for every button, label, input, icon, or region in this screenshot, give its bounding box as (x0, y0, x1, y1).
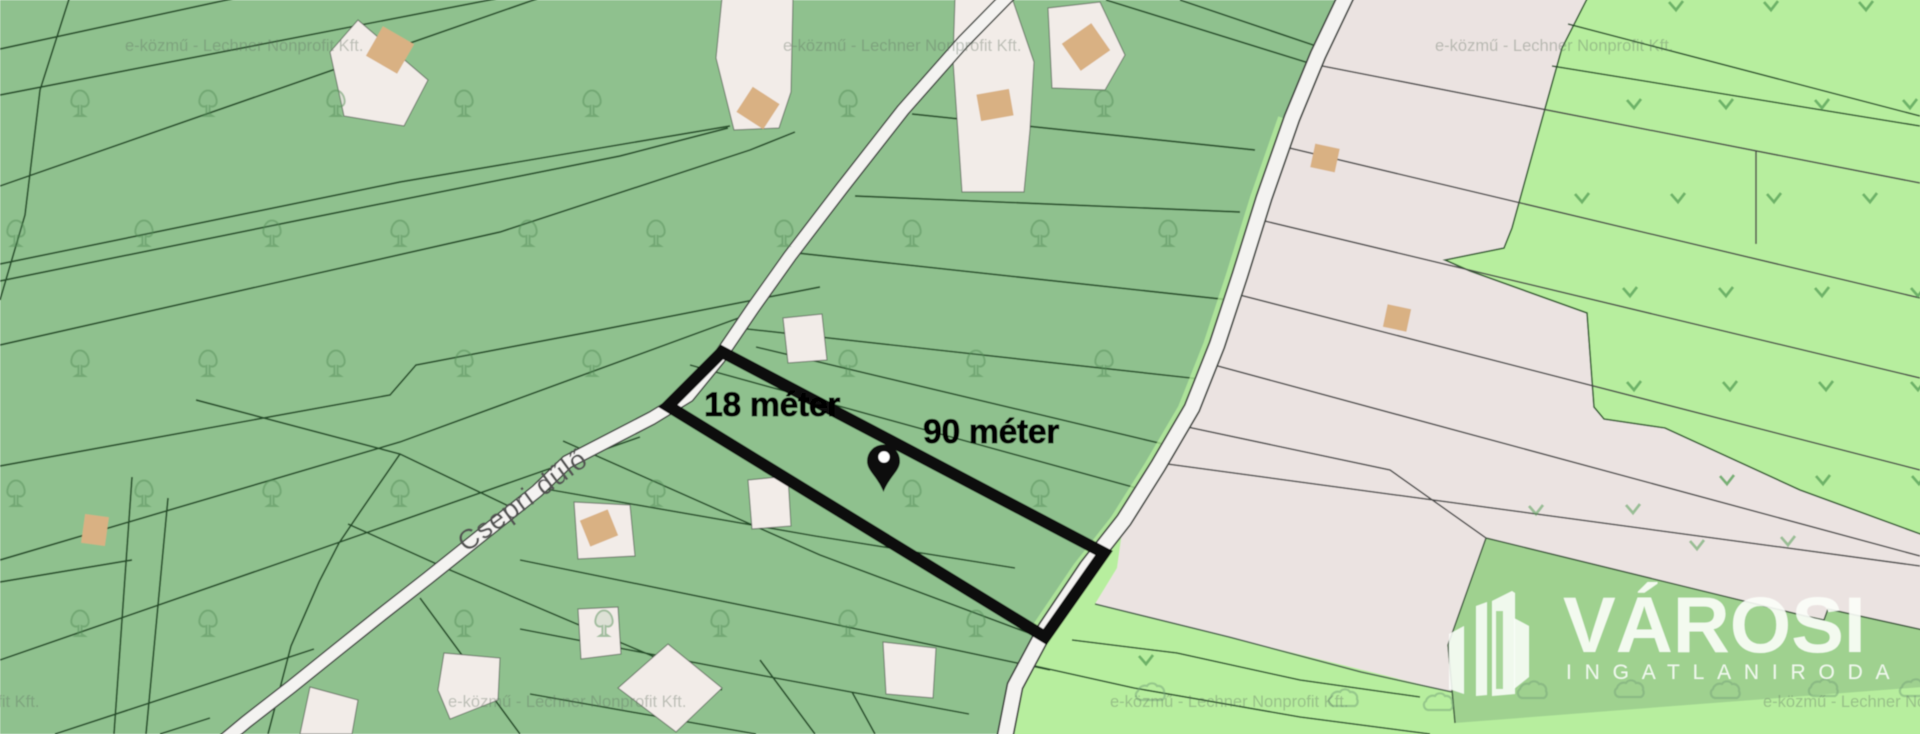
svg-text:e-közmű - Lechner Nonprofit Kf: e-közmű - Lechner Nonprofit Kft. (1763, 693, 1920, 711)
svg-text:e-közmű - Lechner Nonprofit Kf: e-közmű - Lechner Nonprofit Kft. (448, 693, 686, 711)
svg-text:e-közmű - Lechner Nonprofit Kf: e-közmű - Lechner Nonprofit Kft. (0, 693, 39, 711)
svg-text:e-közmű - Lechner Nonprofit Kf: e-közmű - Lechner Nonprofit Kft. (125, 37, 363, 55)
svg-text:18 méter: 18 méter (704, 386, 840, 424)
svg-text:e-közmű - Lechner Nonprofit Kf: e-közmű - Lechner Nonprofit Kft. (1435, 37, 1673, 55)
svg-text:e-közmű - Lechner Nonprofit Kf: e-közmű - Lechner Nonprofit Kft. (783, 37, 1021, 55)
svg-text:VÁROSI: VÁROSI (1563, 580, 1866, 669)
svg-text:90 méter: 90 méter (923, 413, 1059, 451)
svg-text:INGATLANIRODA: INGATLANIRODA (1566, 661, 1902, 684)
svg-text:e-közmű - Lechner Nonprofit Kf: e-közmű - Lechner Nonprofit Kft. (1110, 693, 1348, 711)
